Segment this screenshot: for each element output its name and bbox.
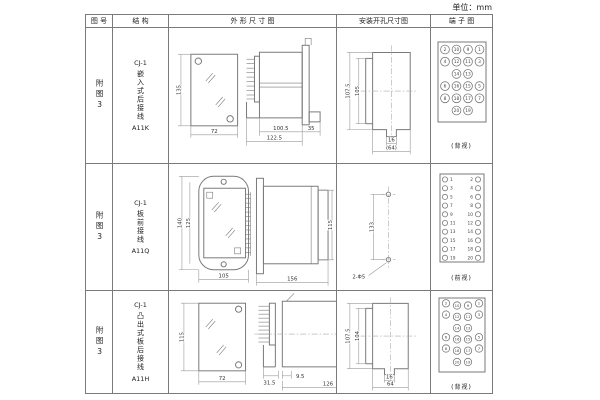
dim-slot-width: 16 (386, 374, 393, 380)
row3-view-label: (背视) (451, 382, 472, 391)
header-structure-label: 结 构 (132, 16, 148, 26)
header-terminal: 端 子 图 (431, 15, 493, 28)
row1-model-label: CJ-1 (134, 59, 147, 67)
svg-text:7: 7 (478, 96, 481, 102)
row1-mounting-cell: 107.5 105 16 (64) (337, 28, 431, 164)
row3-terminal-diagram: 2109141211314136161558181772019 (431, 295, 493, 379)
dim-slot-width: 16 (388, 137, 395, 143)
svg-text:7: 7 (450, 203, 453, 209)
svg-text:4: 4 (443, 59, 446, 65)
dim-cutout-inner-height: 105 (355, 85, 361, 95)
dim-side-height: 115 (328, 219, 334, 229)
unit-label: 单位：mm (400, 2, 492, 13)
row3-structure-desc: 凸出式板后接线 (136, 312, 146, 372)
svg-text:10: 10 (454, 303, 459, 308)
row1-outline-cell: 135 72 100.5 (169, 28, 337, 164)
row1-fig-no: 附图3 (86, 28, 113, 164)
svg-text:4: 4 (470, 186, 473, 192)
svg-text:20: 20 (454, 359, 459, 364)
dim-front-outer-height: 140 (178, 217, 184, 228)
dim-cutout-outer-height: 107.5 (346, 328, 352, 343)
svg-text:14: 14 (453, 71, 459, 77)
svg-text:13: 13 (450, 229, 456, 235)
svg-text:2: 2 (443, 47, 446, 53)
dim-hole-spec: 2-Φ5 (352, 274, 365, 280)
row2-outline-cell: 140 125 105 156 115 (169, 164, 337, 291)
svg-text:14: 14 (454, 325, 459, 330)
svg-text:16: 16 (453, 84, 459, 90)
header-mounting-label: 安装开孔尺寸图 (359, 16, 408, 26)
svg-text:2: 2 (444, 301, 447, 306)
row2-outline-drawing: 140 125 105 156 115 (169, 164, 336, 291)
svg-text:8: 8 (443, 96, 446, 102)
svg-text:6: 6 (444, 335, 447, 340)
row3-code-label: A11H (132, 375, 150, 383)
row2-model-label: CJ-1 (134, 199, 147, 207)
svg-text:7: 7 (477, 346, 480, 351)
svg-text:3: 3 (477, 312, 480, 317)
svg-text:11: 11 (465, 314, 470, 319)
svg-text:1: 1 (477, 301, 480, 306)
header-fig-no: 图 号 (86, 15, 113, 28)
dim-foot-length: 31.5 (263, 380, 275, 386)
svg-text:16: 16 (454, 337, 459, 342)
svg-text:17: 17 (465, 348, 470, 353)
svg-text:20: 20 (467, 255, 473, 261)
svg-text:3: 3 (478, 59, 481, 65)
datasheet-page: 单位：mm 图 号 结 构 外 形 尺 寸 图 安装开孔尺寸图 端 子 图 附图… (0, 0, 600, 400)
svg-text:17: 17 (450, 247, 456, 253)
svg-text:19: 19 (450, 255, 456, 261)
svg-text:18: 18 (453, 96, 459, 102)
header-terminal-label: 端 子 图 (449, 16, 474, 26)
svg-text:19: 19 (465, 108, 471, 114)
row3-mounting-cell: 107.5 104 16 64 (337, 291, 431, 394)
dim-span-width: (64) (386, 145, 397, 151)
svg-text:10: 10 (453, 47, 459, 53)
row1-structure: CJ-1 嵌入式后接线 A11K (113, 28, 169, 164)
svg-text:15: 15 (465, 84, 471, 90)
row2-structure-desc: 板前接线 (136, 210, 146, 244)
row2-terminal-diagram: 1234567891011121314151617181920 (431, 170, 493, 270)
dim-front-inner-height: 125 (186, 217, 192, 227)
header-structure: 结 构 (113, 15, 169, 28)
row3-outline-drawing: 115 72 31.5 (169, 291, 336, 394)
header-outline-label: 外 形 尺 寸 图 (231, 16, 275, 26)
svg-text:4: 4 (444, 312, 447, 317)
row1-outline-drawing: 135 72 100.5 (169, 28, 336, 164)
svg-text:12: 12 (467, 221, 473, 227)
svg-text:5: 5 (477, 335, 480, 340)
row1-fig-no-label: 附图3 (95, 79, 103, 112)
svg-text:9: 9 (450, 212, 453, 218)
row3-structure: CJ-1 凸出式板后接线 A11H (113, 291, 169, 394)
svg-text:15: 15 (450, 238, 456, 244)
row1-structure-desc: 嵌入式后接线 (136, 70, 146, 121)
svg-text:12: 12 (454, 314, 459, 319)
svg-text:18: 18 (467, 247, 473, 253)
row3-fig-no: 附图3 (86, 291, 113, 394)
svg-text:13: 13 (465, 71, 471, 77)
svg-text:11: 11 (465, 59, 471, 65)
svg-text:18: 18 (454, 348, 459, 353)
header-outline: 外 形 尺 寸 图 (169, 15, 337, 28)
dim-body-length: 156 (287, 276, 298, 282)
svg-text:9: 9 (466, 47, 469, 53)
row3-outline-cell: 115 72 31.5 (169, 291, 337, 394)
dim-offset: 9.5 (296, 373, 305, 379)
dim-front-height: 115 (180, 331, 186, 341)
dim-front-width: 72 (211, 128, 218, 134)
row1-view-label: (背视) (451, 141, 472, 150)
header-mounting: 安装开孔尺寸图 (337, 15, 431, 28)
svg-text:17: 17 (465, 96, 471, 102)
row1-terminal-cell: 2109141211314136161558181772019 (背视) (431, 28, 493, 164)
svg-text:2: 2 (470, 177, 473, 183)
row2-structure: CJ-1 板前接线 A11Q (113, 164, 169, 291)
row2-mounting-cell: 133 2-Φ5 (337, 164, 431, 291)
dim-front-width: 105 (219, 273, 229, 279)
row1-code-label: A11K (132, 124, 149, 132)
svg-text:8: 8 (444, 346, 447, 351)
row3-model-label: CJ-1 (134, 301, 147, 309)
row2-mounting-drawing: 133 2-Φ5 (337, 164, 430, 291)
dim-body-length: 100.5 (273, 125, 288, 131)
svg-text:5: 5 (478, 84, 481, 90)
svg-text:10: 10 (467, 212, 473, 218)
row2-view-label: (前视) (451, 273, 472, 282)
svg-text:20: 20 (453, 108, 459, 114)
svg-text:11: 11 (450, 221, 456, 227)
svg-text:19: 19 (465, 359, 470, 364)
dim-cutout-inner-height: 104 (355, 330, 361, 341)
header-fig-no-label: 图 号 (91, 16, 107, 26)
dim-total-length: 122.5 (267, 135, 282, 141)
svg-text:8: 8 (470, 203, 473, 209)
row3-terminal-cell: 2109141211314136161558181772019 (背视) (431, 291, 493, 394)
svg-text:6: 6 (443, 84, 446, 90)
row2-fig-no: 附图3 (86, 164, 113, 291)
row2-fig-no-label: 附图3 (95, 211, 103, 244)
svg-text:1: 1 (450, 177, 453, 183)
dim-body-length: 126 (323, 381, 334, 387)
row1-terminal-diagram: 2109141211314136161558181772019 (431, 38, 493, 138)
dim-front-height: 135 (177, 84, 183, 94)
dim-span-width: 64 (387, 381, 394, 387)
dim-rear-length: 35 (308, 125, 315, 131)
dim-front-width: 72 (219, 375, 226, 381)
svg-text:6: 6 (470, 194, 473, 200)
svg-text:1: 1 (478, 47, 481, 53)
svg-text:12: 12 (453, 59, 459, 65)
row3-fig-no-label: 附图3 (95, 326, 103, 359)
svg-text:3: 3 (450, 186, 453, 192)
svg-text:13: 13 (465, 325, 470, 330)
svg-text:5: 5 (450, 194, 453, 200)
dim-cutout-outer-height: 107.5 (346, 83, 352, 98)
row2-terminal-cell: 1234567891011121314151617181920 (前视) (431, 164, 493, 291)
svg-text:15: 15 (465, 337, 470, 342)
row1-mounting-drawing: 107.5 105 16 (64) (337, 28, 430, 164)
row3-mounting-drawing: 107.5 104 16 64 (337, 291, 430, 394)
dim-hole-span: 133 (369, 221, 375, 231)
svg-text:14: 14 (467, 229, 473, 235)
row2-code-label: A11Q (132, 247, 150, 255)
svg-text:16: 16 (467, 238, 473, 244)
dimension-table: 图 号 结 构 外 形 尺 寸 图 安装开孔尺寸图 端 子 图 附图3 CJ-1… (85, 14, 493, 394)
svg-text:9: 9 (466, 303, 469, 308)
